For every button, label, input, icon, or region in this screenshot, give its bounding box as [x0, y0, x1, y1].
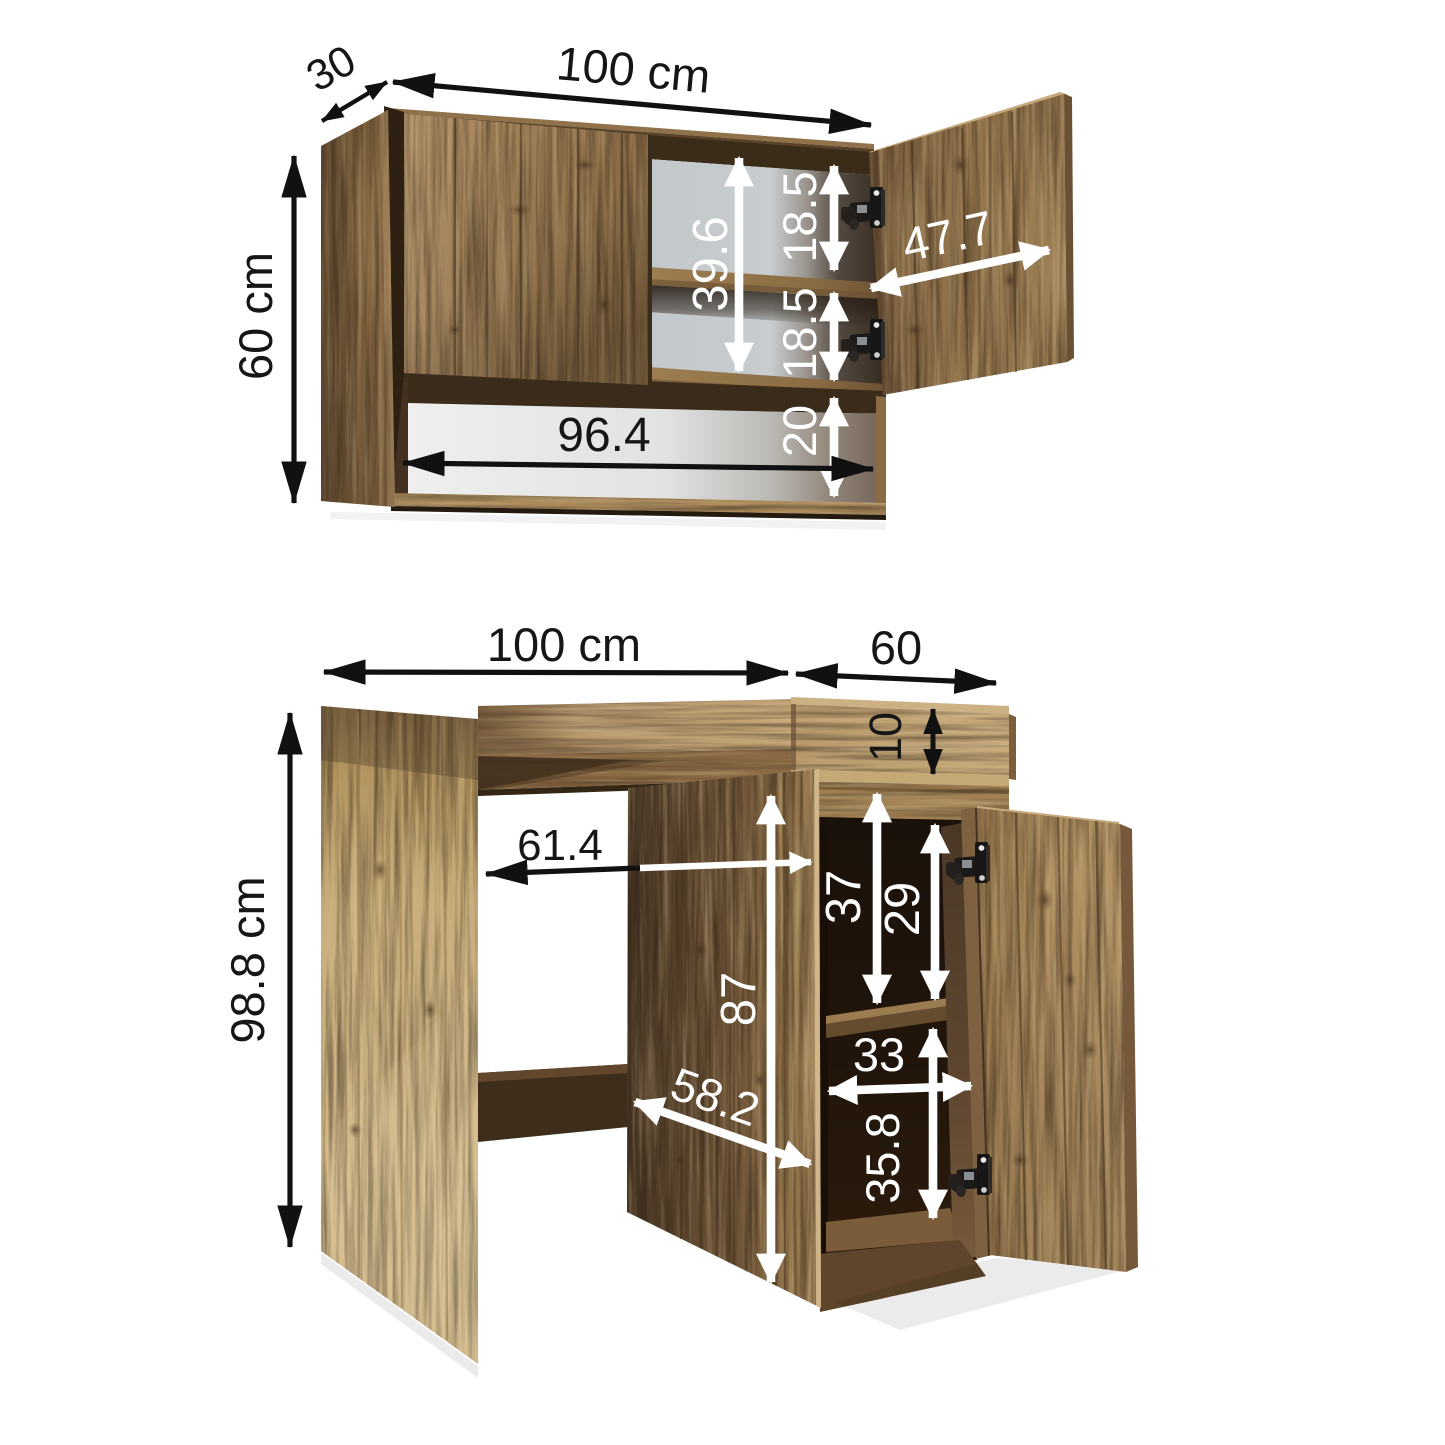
svg-text:37: 37 [817, 870, 871, 925]
svg-text:10: 10 [860, 712, 911, 762]
svg-text:33: 33 [853, 1028, 905, 1081]
svg-text:96.4: 96.4 [557, 409, 650, 462]
svg-text:39.6: 39.6 [684, 216, 738, 311]
svg-text:18.5: 18.5 [773, 171, 826, 262]
svg-text:60: 60 [870, 621, 922, 674]
svg-text:29: 29 [876, 882, 930, 937]
svg-text:87: 87 [712, 972, 766, 1027]
svg-text:100 cm: 100 cm [487, 618, 641, 671]
svg-text:61.4: 61.4 [517, 821, 603, 870]
svg-text:35.8: 35.8 [856, 1112, 909, 1203]
svg-text:60 cm: 60 cm [229, 252, 282, 380]
svg-text:20: 20 [773, 405, 826, 457]
svg-text:98.8 cm: 98.8 cm [221, 876, 274, 1043]
svg-text:18.5: 18.5 [773, 287, 826, 378]
